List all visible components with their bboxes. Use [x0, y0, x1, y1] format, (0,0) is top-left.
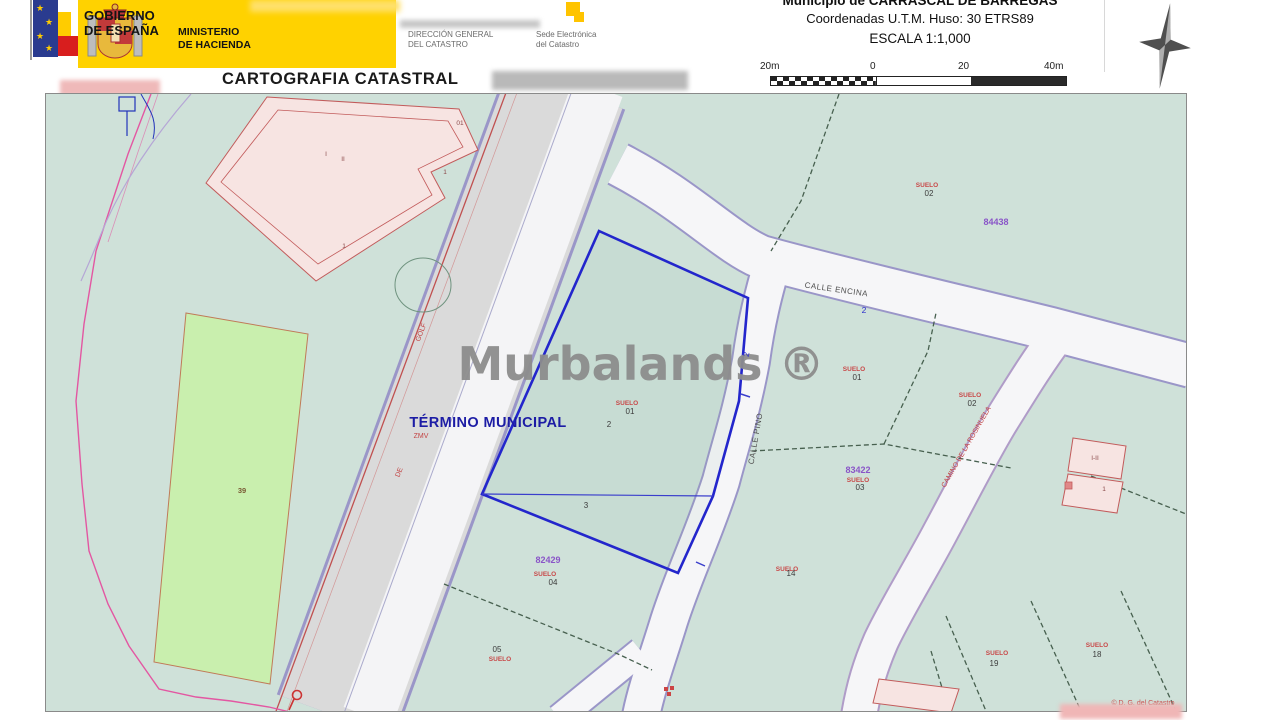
utm-coords-label: Coordenadas U.T.M. Huso: 30 ETRS89: [700, 11, 1140, 26]
building-label: 1: [443, 169, 447, 176]
scalebar-label-40m: 40m: [1044, 61, 1063, 72]
termino-municipal-label: TÉRMINO MUNICIPAL: [409, 414, 566, 431]
sede-electronica-icon: [558, 0, 588, 26]
parcel-label: SUELO: [489, 656, 511, 663]
road-number: 2: [862, 305, 867, 315]
redacted-pink-box-bottom: [1060, 704, 1182, 719]
parcel-label: 03: [856, 483, 865, 492]
sede-line2: del Catastro: [536, 40, 616, 50]
parcel-label: 02: [968, 399, 977, 408]
ministerio-line2: DE HACIENDA: [178, 39, 251, 52]
watermark: Murbalands ®: [457, 337, 824, 391]
gobierno-line2: DE ESPAÑA: [84, 23, 159, 38]
eu-flag-icon: ★★ ★★: [33, 0, 58, 57]
parcel-label: SUELO: [1086, 642, 1108, 649]
building-label: 1: [1102, 486, 1106, 493]
redacted-gray-box: [492, 71, 688, 90]
parcel-label: SUELO: [916, 182, 938, 189]
parcel-label: 14: [787, 569, 796, 578]
scale-bar-checker: [771, 77, 876, 85]
spain-eu-flag-logo: ★★ ★★: [33, 0, 79, 68]
scale-label: ESCALA 1:1,000: [700, 31, 1140, 46]
cadastral-map: Murbalands ®TÉRMINO MUNICIPALZMVCALLE EN…: [46, 94, 1186, 711]
parcel-label: 3: [584, 501, 589, 510]
scan-edge: [30, 0, 32, 60]
termino-sub-label: ZMV: [414, 433, 429, 440]
scale-bar-white: [876, 77, 972, 85]
redacted-yellow-band: [250, 0, 400, 12]
ministerio-line1: MINISTERIO: [178, 26, 251, 39]
ministerio-title: MINISTERIO DE HACIENDA: [178, 26, 251, 52]
header-divider: [1104, 0, 1105, 72]
scalebar-label-20-right: 20: [958, 61, 969, 72]
sede-electronica-label: Sede Electrónica del Catastro: [536, 30, 616, 50]
municipality-block: Municipio de CARRASCAL DE BARREGAS Coord…: [700, 0, 1140, 46]
parcel-label: SUELO: [986, 650, 1008, 657]
cadastral-map-page: ★★ ★★ GOBIERNO DE ESPAÑA MINISTERIO DE H…: [0, 0, 1280, 720]
parcel-label: SUELO: [534, 571, 556, 578]
sede-line1: Sede Electrónica: [536, 30, 616, 40]
parcel-label: 05: [493, 645, 502, 654]
page-title: CARTOGRAFIA CATASTRAL: [222, 70, 459, 89]
parcel-label: 39: [238, 486, 246, 495]
parcel-label: 01: [853, 373, 862, 382]
parcel-label: SUELO: [959, 392, 981, 399]
scale-bar-dark: [971, 77, 1066, 85]
spain-flag-red: [58, 36, 78, 56]
block-label: 82429: [535, 555, 560, 565]
gobierno-line1: GOBIERNO: [84, 8, 159, 23]
parcel-label: SUELO: [616, 400, 638, 407]
block-label: 83422: [845, 465, 870, 475]
gobierno-title: GOBIERNO DE ESPAÑA: [84, 8, 159, 38]
parcel-label: SUELO: [843, 366, 865, 373]
map-frame: Murbalands ®TÉRMINO MUNICIPALZMVCALLE EN…: [45, 93, 1187, 712]
scale-bar: [770, 76, 1067, 86]
scalebar-label-0: 0: [870, 61, 876, 72]
building-label: 01: [456, 120, 464, 127]
parcel-label: 04: [549, 578, 558, 587]
parcel-label: 18: [1093, 650, 1102, 659]
building-label: I: [325, 151, 327, 158]
direccion-general-label: DIRECCIÓN GENERAL DEL CATASTRO: [408, 30, 518, 50]
parcel-label: 01: [626, 407, 635, 416]
dgc-line2: DEL CATASTRO: [408, 40, 518, 50]
building-label: II: [341, 156, 345, 163]
dgc-line1: DIRECCIÓN GENERAL: [408, 30, 518, 40]
parcel-label: 02: [925, 189, 934, 198]
block-label: 84438: [983, 217, 1008, 227]
parcel-label: 19: [990, 659, 999, 668]
building-label: 1: [342, 243, 346, 250]
building-label: I-II: [1091, 455, 1099, 462]
scalebar-label-20m-left: 20m: [760, 61, 779, 72]
red-building-mark: [1065, 482, 1072, 489]
north-compass-icon: [1133, 0, 1197, 92]
municipality-title: Municipio de CARRASCAL DE BARREGAS: [700, 0, 1140, 8]
parcel-label: 2: [607, 420, 612, 429]
redacted-gray-line: [400, 20, 540, 28]
